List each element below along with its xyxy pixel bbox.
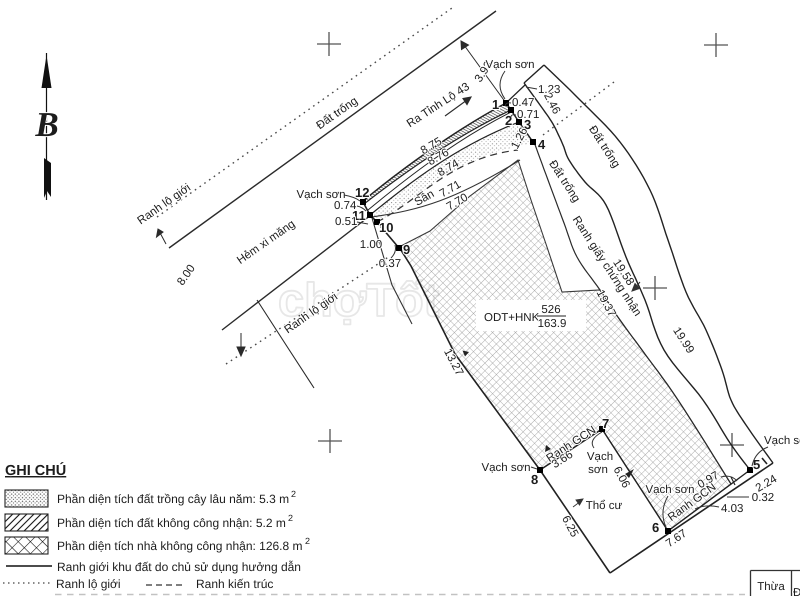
svg-text:0.37: 0.37 xyxy=(379,258,401,270)
svg-text:1.00: 1.00 xyxy=(360,239,382,251)
svg-text:10: 10 xyxy=(379,220,393,235)
svg-text:0.51: 0.51 xyxy=(335,216,357,228)
svg-text:4.03: 4.03 xyxy=(721,503,743,515)
svg-text:B: B xyxy=(34,105,58,144)
svg-text:Đ: Đ xyxy=(793,587,800,596)
svg-text:Vạch: Vạch xyxy=(587,451,613,463)
svg-text:6: 6 xyxy=(652,520,659,535)
svg-text:Thổ cư: Thổ cư xyxy=(586,499,623,512)
svg-text:0.32: 0.32 xyxy=(752,492,774,504)
svg-text:163.9: 163.9 xyxy=(538,318,567,330)
svg-text:9: 9 xyxy=(403,242,410,257)
svg-text:0.71: 0.71 xyxy=(517,109,539,121)
svg-text:1: 1 xyxy=(492,97,499,112)
svg-text:Ranh giới khu đất do chủ sử dụ: Ranh giới khu đất do chủ sử dụng hưởng d… xyxy=(57,560,301,574)
svg-text:sơn: sơn xyxy=(588,464,608,476)
svg-text:0.47: 0.47 xyxy=(512,97,534,109)
svg-text:Vạch sơn: Vạch sơn xyxy=(481,462,530,474)
svg-text:Ranh kiến trúc: Ranh kiến trúc xyxy=(196,577,273,591)
svg-text:Vạch sơn: Vạch sơn xyxy=(485,59,534,71)
svg-text:0.74: 0.74 xyxy=(334,200,357,212)
svg-text:Phần diện tích đất trồng cây l: Phần diện tích đất trồng cây lâu năm: 5.… xyxy=(57,492,289,506)
svg-text:2: 2 xyxy=(291,489,296,499)
svg-text:Ranh lộ giới: Ranh lộ giới xyxy=(56,577,121,591)
svg-text:ODT+HNK: ODT+HNK xyxy=(484,312,540,324)
svg-text:2: 2 xyxy=(305,536,310,546)
svg-text:Phần diện tích đất không công: Phần diện tích đất không công nhận: 5.2 … xyxy=(57,516,286,530)
svg-text:4: 4 xyxy=(538,137,546,152)
svg-text:7: 7 xyxy=(602,416,609,431)
svg-text:526: 526 xyxy=(541,304,560,316)
svg-text:Thừa: Thừa xyxy=(757,581,785,593)
svg-text:2: 2 xyxy=(288,513,293,523)
svg-text:8: 8 xyxy=(531,472,538,487)
svg-text:12: 12 xyxy=(355,185,369,200)
svg-text:Vạch sơn: Vạch sơn xyxy=(764,435,800,447)
svg-text:GHI CHÚ: GHI CHÚ xyxy=(5,462,66,479)
svg-text:Phần diện tích nhà không công: Phần diện tích nhà không công nhận: 126.… xyxy=(57,539,303,553)
svg-text:Vạch sơn: Vạch sơn xyxy=(645,484,694,496)
